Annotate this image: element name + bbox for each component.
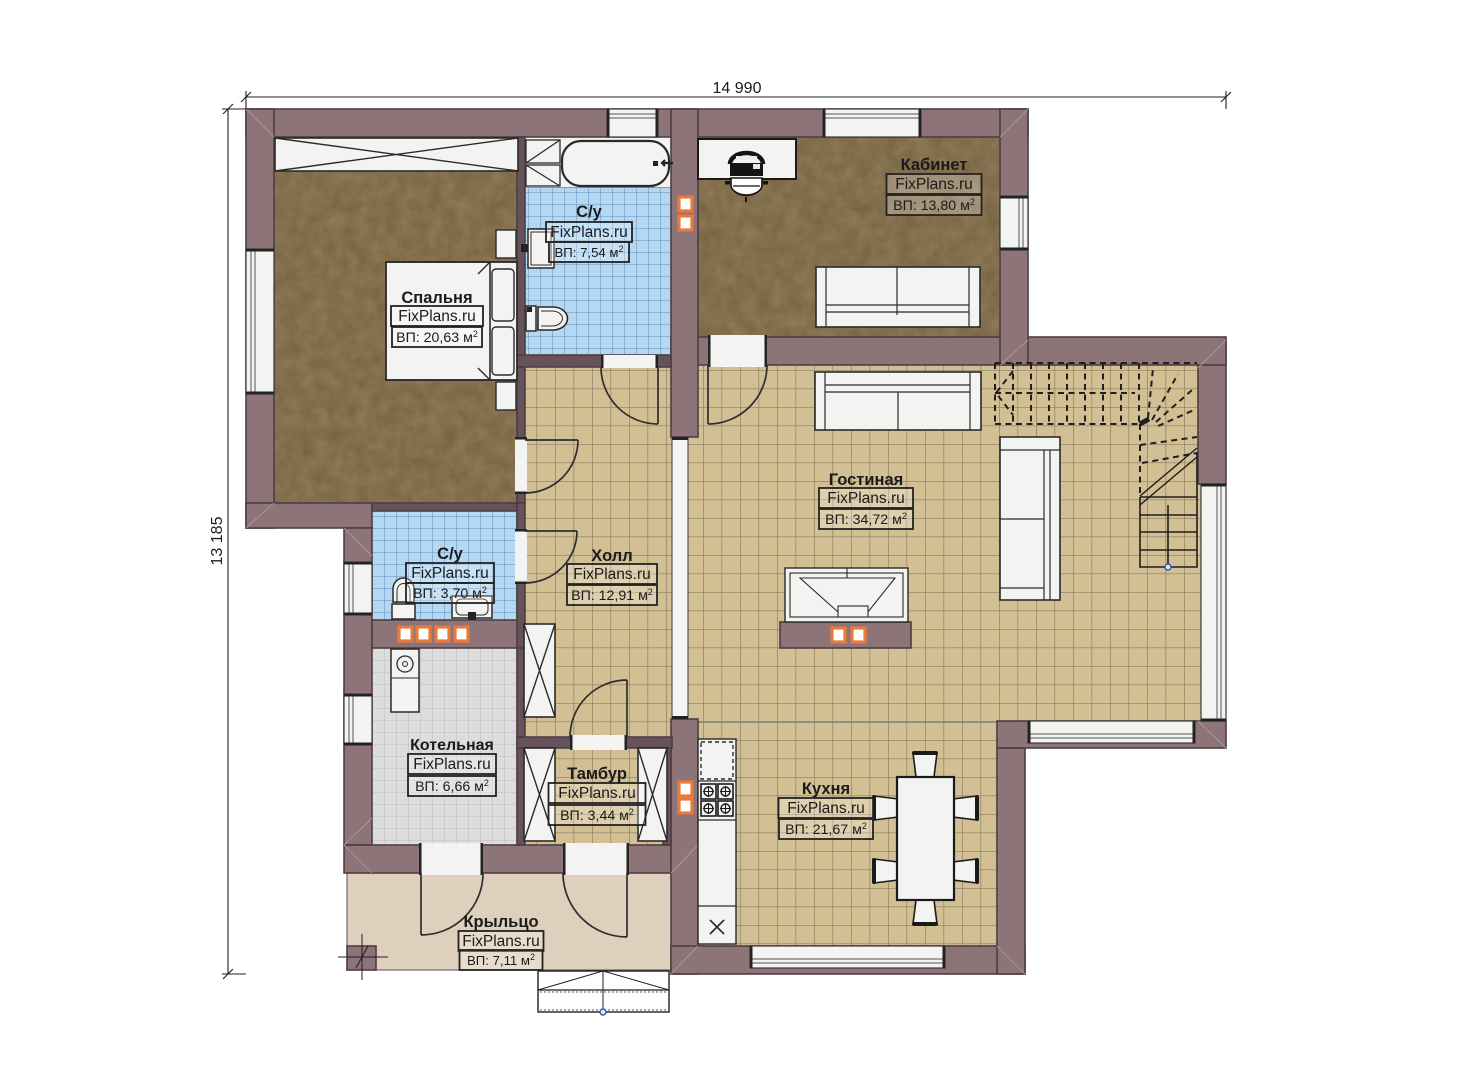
- svg-text:FixPlans.ru: FixPlans.ru: [411, 565, 489, 582]
- svg-text:Котельная: Котельная: [410, 737, 494, 754]
- svg-text:Крыльцо: Крыльцо: [463, 913, 538, 931]
- svg-text:FixPlans.ru: FixPlans.ru: [895, 176, 973, 193]
- svg-text:ВП: 13,80 м2: ВП: 13,80 м2: [893, 197, 975, 214]
- svg-text:14 990: 14 990: [713, 80, 762, 97]
- svg-text:ВП: 3,70 м2: ВП: 3,70 м2: [413, 585, 487, 602]
- svg-text:ВП: 12,91 м2: ВП: 12,91 м2: [571, 587, 653, 604]
- svg-text:13 185: 13 185: [209, 516, 226, 565]
- svg-text:FixPlans.ru: FixPlans.ru: [558, 785, 636, 802]
- svg-text:Кабинет: Кабинет: [901, 156, 968, 174]
- svg-text:С/у: С/у: [437, 545, 464, 563]
- svg-text:ВП: 3,44 м2: ВП: 3,44 м2: [560, 807, 634, 824]
- svg-text:FixPlans.ru: FixPlans.ru: [787, 800, 865, 817]
- svg-text:FixPlans.ru: FixPlans.ru: [827, 490, 905, 507]
- svg-text:FixPlans.ru: FixPlans.ru: [573, 566, 651, 583]
- svg-text:FixPlans.ru: FixPlans.ru: [550, 224, 628, 241]
- svg-text:Холл: Холл: [591, 547, 632, 565]
- svg-text:ВП: 7,11 м2: ВП: 7,11 м2: [467, 952, 535, 968]
- svg-text:FixPlans.ru: FixPlans.ru: [398, 308, 476, 325]
- svg-text:С/у: С/у: [576, 203, 603, 221]
- svg-text:ВП: 7,54 м2: ВП: 7,54 м2: [554, 244, 623, 260]
- svg-text:Спальня: Спальня: [401, 289, 472, 307]
- svg-text:Кухня: Кухня: [802, 780, 850, 798]
- svg-text:ВП: 20,63 м2: ВП: 20,63 м2: [396, 329, 478, 346]
- svg-text:ВП: 34,72 м2: ВП: 34,72 м2: [825, 511, 907, 528]
- svg-text:FixPlans.ru: FixPlans.ru: [462, 933, 540, 950]
- svg-text:Гостиная: Гостиная: [829, 471, 904, 489]
- svg-text:ВП: 21,67 м2: ВП: 21,67 м2: [785, 821, 867, 838]
- svg-text:Тамбур: Тамбур: [567, 765, 627, 783]
- svg-text:ВП: 6,66 м2: ВП: 6,66 м2: [415, 778, 489, 795]
- svg-text:FixPlans.ru: FixPlans.ru: [413, 756, 491, 773]
